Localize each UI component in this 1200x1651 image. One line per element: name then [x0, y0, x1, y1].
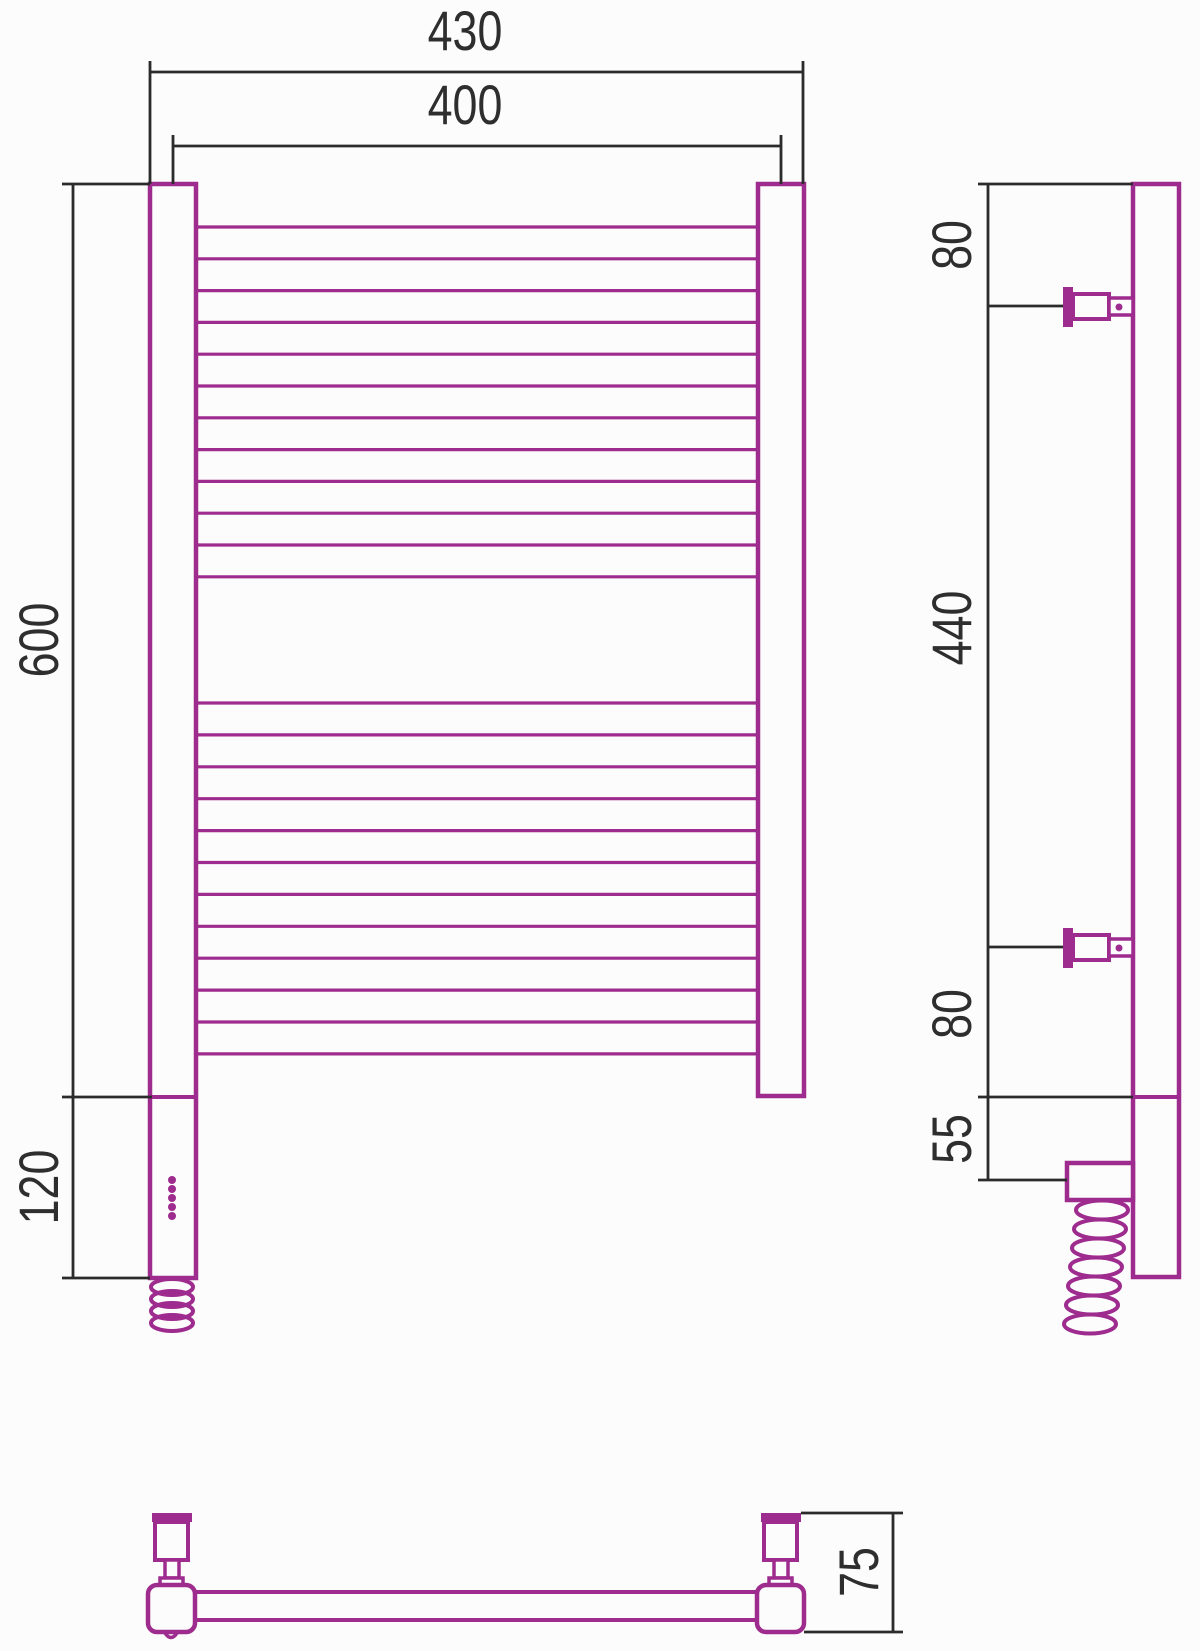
bottom-rung-bar [195, 1592, 757, 1620]
dim-label-top-offset: 80 [920, 220, 983, 270]
cable-coil-loop [1066, 1296, 1118, 1315]
side-view: 80 440 80 55 [920, 184, 1179, 1334]
dim-label-depth: 75 [827, 1547, 890, 1597]
lower-wall-bracket [1063, 928, 1133, 968]
bottom-right-bracket-arm [764, 1522, 797, 1560]
led-dot [168, 1212, 176, 1220]
side-dimensions: 80 440 80 55 [920, 184, 1133, 1180]
bottom-dimensions: 75 [801, 1513, 903, 1632]
dim-label-bottom-offset: 80 [920, 989, 983, 1039]
dim-label-height: 600 [7, 603, 70, 678]
dim-label-element-height: 120 [7, 1150, 70, 1225]
side-post-bar [1133, 184, 1179, 1277]
left-post [150, 184, 196, 1278]
bottom-left-post-block [148, 1585, 195, 1632]
cable-junction-box [1067, 1163, 1133, 1200]
lower-bracket-screw [1116, 945, 1123, 952]
led-dot [168, 1194, 176, 1202]
upper-bracket-arm [1073, 294, 1109, 319]
bottom-right-post-block [757, 1585, 804, 1632]
lower-bracket-arm [1073, 935, 1109, 960]
cable-coil-loop [1074, 1220, 1126, 1239]
upper-bracket-screw [1116, 304, 1123, 311]
led-dot [168, 1203, 176, 1211]
bottom-left-bracket-arm [155, 1522, 188, 1560]
bottom-view: 75 [148, 1513, 903, 1638]
upper-wall-bracket [1063, 287, 1133, 327]
led-dot [168, 1185, 176, 1193]
bottom-right-bracket-stem [774, 1560, 788, 1578]
cable-coil-loop [1070, 1258, 1122, 1277]
rung-lines [196, 227, 758, 1054]
cable-coil-loop [1072, 1239, 1124, 1258]
lower-bracket-wall-plate [1063, 928, 1073, 968]
bottom-right-post [757, 1513, 804, 1632]
bottom-right-wall-plate [761, 1513, 801, 1522]
dim-label-pivot-width: 400 [428, 73, 503, 136]
dim-label-bracket-span: 440 [920, 591, 983, 666]
power-cable-coil-front [151, 1279, 193, 1331]
cable-coil-loop [1064, 1315, 1116, 1334]
technical-drawing-page: 430 400 600 120 [0, 0, 1200, 1651]
towel-rail-drawing: 430 400 600 120 [0, 0, 1200, 1651]
led-dot [168, 1176, 176, 1184]
cable-coil-loop [1076, 1201, 1128, 1220]
bottom-left-wall-plate [152, 1513, 192, 1522]
right-post [758, 184, 804, 1096]
cable-coil-loop [1068, 1277, 1120, 1296]
dim-label-element-offset: 55 [920, 1114, 983, 1164]
dim-label-overall-width: 430 [428, 0, 503, 62]
bottom-left-post [148, 1513, 195, 1638]
led-indicator-dots [168, 1176, 176, 1220]
front-view: 430 400 600 120 [7, 0, 804, 1331]
bottom-left-bracket-stem [165, 1560, 179, 1578]
front-dimensions: 430 400 600 120 [7, 0, 803, 1278]
upper-bracket-wall-plate [1063, 287, 1073, 327]
power-cable-coil-side [1064, 1201, 1128, 1334]
